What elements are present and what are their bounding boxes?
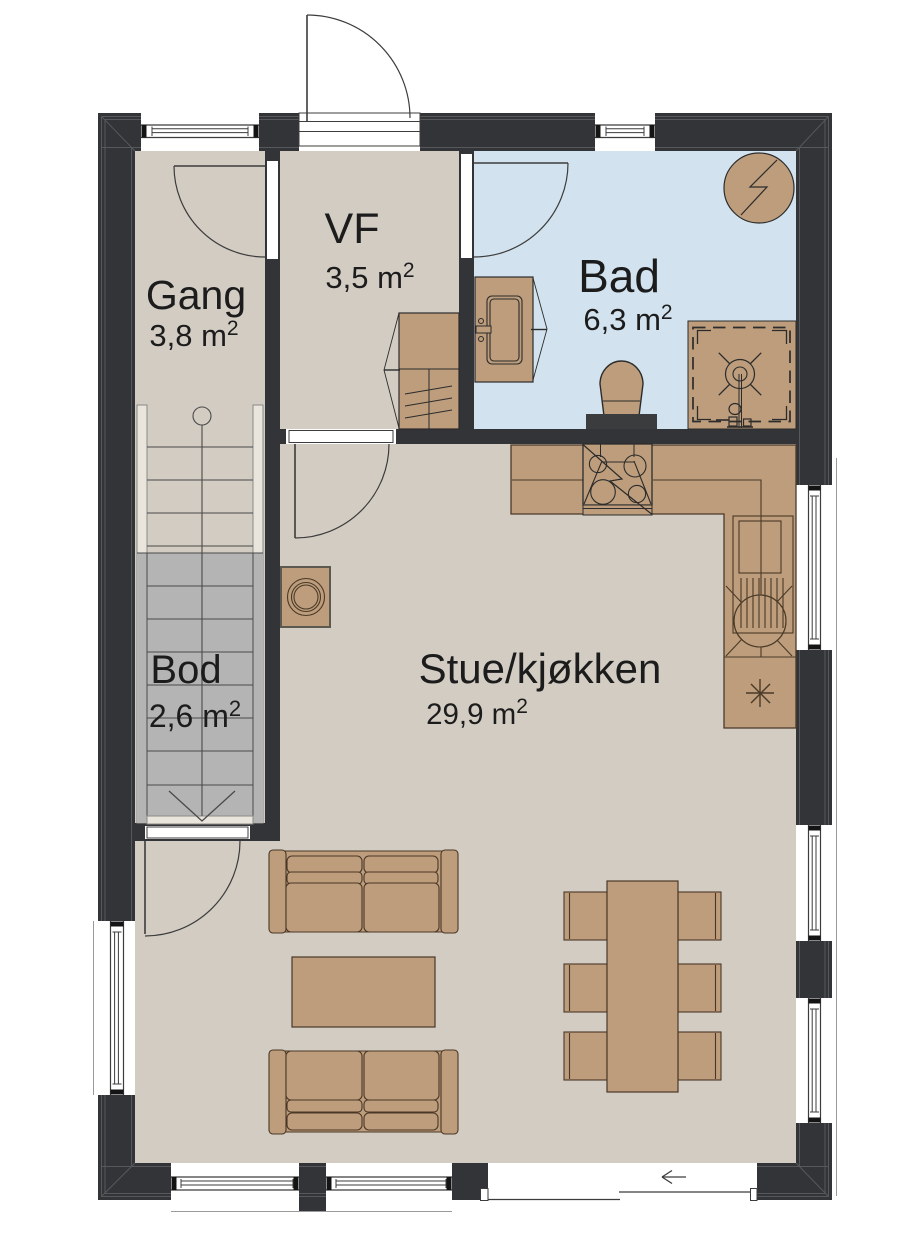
svg-text:Bad: Bad <box>578 250 660 302</box>
svg-text:Stue/kjøkken: Stue/kjøkken <box>419 645 662 692</box>
svg-text:Gang: Gang <box>146 272 246 318</box>
svg-text:3,8 m2: 3,8 m2 <box>149 317 238 353</box>
svg-text:29,9 m2: 29,9 m2 <box>426 695 528 731</box>
svg-text:2,6 m2: 2,6 m2 <box>149 696 241 734</box>
svg-text:Bod: Bod <box>150 648 221 692</box>
svg-text:6,3 m2: 6,3 m2 <box>583 301 672 337</box>
svg-text:3,5 m2: 3,5 m2 <box>325 259 414 295</box>
svg-text:VF: VF <box>325 205 380 253</box>
